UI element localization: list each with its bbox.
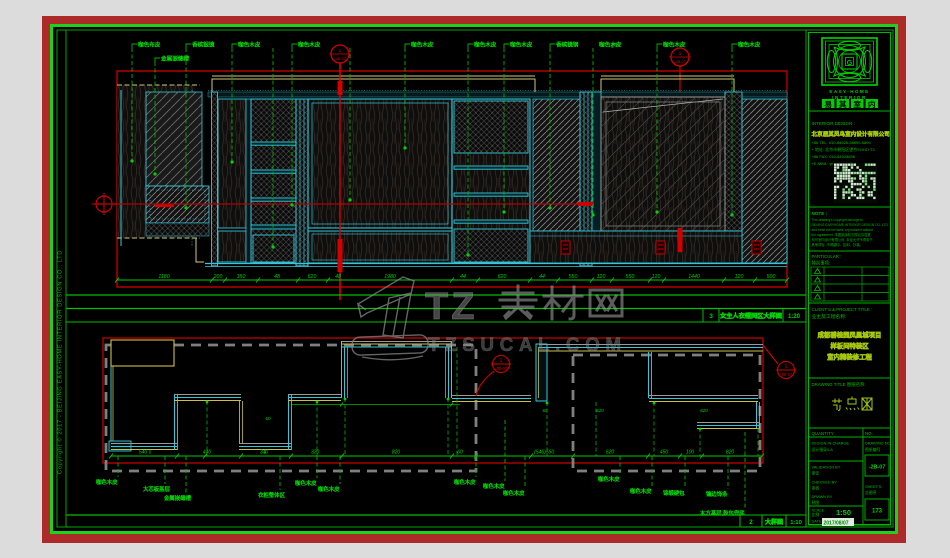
svg-text:咖色木皮: 咖色木皮 [483, 482, 505, 490]
svg-text:金属嵌缝槽: 金属嵌缝槽 [164, 494, 192, 502]
svg-text:320: 320 [311, 450, 320, 456]
svg-text:PARTICULAR :: PARTICULAR : [812, 254, 842, 259]
svg-text:120: 120 [597, 274, 606, 280]
svg-text:大芯板基层: 大芯板基层 [143, 485, 171, 493]
svg-text:审核: 审核 [812, 486, 820, 491]
svg-text:审定: 审定 [812, 471, 820, 476]
svg-text:香槟银镜: 香槟银镜 [192, 41, 215, 49]
svg-text:易: 易 [824, 100, 832, 109]
svg-text:衣柜整体区: 衣柜整体区 [258, 491, 286, 499]
svg-text:1: 1 [785, 364, 788, 370]
svg-text:1440: 1440 [688, 274, 700, 280]
svg-text:其他项目, 不得翻印、复制、抄袭。: 其他项目, 不得翻印、复制、抄袭。 [812, 242, 863, 247]
svg-text:the agreement. 本图纸版权归属北京居其: the agreement. 本图纸版权归属北京居其 [812, 232, 872, 237]
svg-text:样板间特装区: 样板间特装区 [830, 341, 869, 350]
svg-text:1:10: 1:10 [790, 520, 802, 526]
svg-text:540: 540 [139, 450, 148, 456]
svg-text:1:50: 1:50 [836, 508, 851, 517]
svg-text:820: 820 [392, 450, 401, 456]
svg-text:咖色木皮: 咖色木皮 [503, 489, 525, 497]
svg-text:and must not be used, reproduc: and must not be used, reproduced without [812, 228, 874, 232]
svg-text:INTERIOR DESIGN :: INTERIOR DESIGN : [812, 121, 855, 126]
svg-text:120: 120 [735, 274, 744, 280]
svg-text:咖色木皮: 咖色木皮 [298, 41, 321, 49]
svg-text:特别事项:: 特别事项: [812, 260, 831, 267]
svg-text:EASY-HOME: EASY-HOME [829, 89, 869, 94]
svg-text:This drawing's copyright belon: This drawing's copyright belongs to [812, 218, 864, 222]
svg-text:340: 340 [260, 450, 269, 456]
svg-text:咖色木皮: 咖色木皮 [318, 485, 340, 493]
svg-text:室: 室 [853, 99, 861, 109]
svg-text:DRAWING TITLE 图纸名称:: DRAWING TITLE 图纸名称: [812, 381, 866, 388]
svg-text:NOTE :: NOTE : [812, 211, 828, 216]
svg-text:820: 820 [726, 450, 735, 456]
svg-text:550: 550 [626, 274, 635, 280]
svg-text:550: 550 [569, 274, 578, 280]
svg-text:成都碧桂园凤凰城项目: 成都碧桂园凤凰城项目 [818, 330, 882, 339]
svg-text:1: 1 [500, 358, 503, 364]
svg-text:Copyright © 2017 - BEIJING EAS: Copyright © 2017 - BEIJING EASY-HOME INT… [57, 250, 64, 474]
svg-text:+86 TEL: 010-84928-58899-5899: +86 TEL: 010-84928-58899-5899 [812, 140, 872, 145]
svg-text:大样图: 大样图 [765, 518, 783, 526]
svg-text:制图: 制图 [812, 500, 820, 505]
svg-text:350: 350 [237, 274, 246, 280]
svg-text:48: 48 [335, 274, 341, 280]
svg-text:DRAWN BY: DRAWN BY [812, 494, 833, 499]
svg-text:60: 60 [265, 416, 271, 421]
svg-text:+ 地址: 北京市朝阳区望京SOHO T3: + 地址: 北京市朝阳区望京SOHO T3 [812, 146, 876, 152]
svg-text:其: 其 [839, 99, 847, 109]
svg-text:业主及工程名称:: 业主及工程名称: [812, 313, 847, 320]
svg-text:咖色木皮: 咖色木皮 [454, 478, 476, 486]
svg-text:图纸编号: 图纸编号 [865, 447, 881, 452]
svg-text:620: 620 [498, 274, 507, 280]
svg-text:NO.: NO. [865, 431, 873, 436]
svg-text:-2B-07: -2B-07 [780, 372, 793, 377]
svg-text:-2B-07: -2B-07 [334, 56, 347, 61]
svg-text:咖色布皮: 咖色布皮 [138, 41, 161, 49]
svg-text:620: 620 [308, 274, 317, 280]
svg-text:1180: 1180 [158, 274, 169, 280]
svg-text:3: 3 [709, 313, 713, 320]
svg-text:44: 44 [460, 274, 466, 280]
svg-text:锦缎硬包: 锦缎硬包 [663, 489, 685, 497]
svg-text:500: 500 [767, 274, 776, 280]
svg-text:咖色木皮: 咖色木皮 [738, 41, 761, 49]
svg-text:VALIDATION BY: VALIDATION BY [812, 465, 841, 470]
svg-text:820: 820 [700, 408, 708, 413]
svg-text:DESIGN IN CHARGE: DESIGN IN CHARGE [812, 441, 850, 446]
svg-text:TZ: TZ [425, 286, 477, 328]
svg-text:200: 200 [213, 274, 223, 280]
svg-text:173: 173 [872, 509, 883, 515]
svg-text:内: 内 [868, 99, 876, 109]
svg-text:咖色木皮: 咖色木皮 [663, 41, 686, 49]
svg-text:120: 120 [652, 274, 661, 280]
svg-text:BEIJING EASYHOME INTERIOR DESI: BEIJING EASYHOME INTERIOR DESIGN CO.,LTD [812, 223, 889, 227]
svg-text:620: 620 [596, 408, 604, 413]
svg-text:(546): (546) [534, 450, 546, 456]
svg-text:SHEET'S: SHEET'S [865, 484, 882, 489]
svg-text:比例: 比例 [812, 512, 820, 517]
svg-text:-2B-07: -2B-07 [674, 59, 687, 64]
svg-text:TZSUCAL.COM: TZSUCAL.COM [428, 335, 627, 356]
svg-text:北京居其凤鸟室内设计有限公司: 北京居其凤鸟室内设计有限公司 [812, 130, 891, 138]
svg-text:2: 2 [749, 519, 753, 526]
svg-text:咖色木皮: 咖色木皮 [96, 478, 118, 486]
svg-text:咖色木皮: 咖色木皮 [474, 41, 497, 49]
svg-text:咖色木皮: 咖色木皮 [238, 41, 261, 49]
svg-text:金属嵌缝槽: 金属嵌缝槽 [161, 55, 189, 63]
svg-text:60: 60 [457, 450, 463, 456]
svg-text:DATE: DATE [812, 519, 822, 524]
svg-text:设计指导/LA: 设计指导/LA [812, 447, 834, 452]
svg-text:QUANTITY: QUANTITY [812, 431, 834, 436]
svg-text:室内精装修工程: 室内精装修工程 [827, 352, 872, 361]
svg-text:450: 450 [660, 450, 669, 456]
svg-text:G: G [847, 60, 853, 67]
svg-text:镶边饰条: 镶边饰条 [706, 490, 728, 498]
svg-text:咖色木皮: 咖色木皮 [510, 41, 533, 49]
svg-text:-2B-07: -2B-07 [869, 465, 885, 471]
svg-text:620: 620 [606, 450, 615, 456]
svg-text:木方基层,鼓包兜底: 木方基层,鼓包兜底 [700, 509, 745, 517]
svg-text:总图序: 总图序 [865, 490, 877, 495]
svg-text:44: 44 [539, 274, 545, 280]
svg-text:咖色木皮: 咖色木皮 [295, 479, 317, 487]
svg-text:CHECKED BY: CHECKED BY [812, 480, 838, 485]
svg-text:DRAWING NO.: DRAWING NO. [865, 441, 892, 446]
svg-text:1980: 1980 [384, 274, 396, 280]
svg-text:1:20: 1:20 [788, 314, 801, 320]
svg-text:咖色木皮: 咖色木皮 [598, 475, 620, 483]
svg-text:48: 48 [274, 274, 280, 280]
svg-text:女主人衣帽间区大样图: 女主人衣帽间区大样图 [720, 312, 782, 320]
svg-text:凤鸟室内设计有限公司, 未经允许不得用于: 凤鸟室内设计有限公司, 未经允许不得用于 [812, 237, 874, 242]
svg-text:香槟镜钢: 香槟镜钢 [556, 41, 579, 49]
svg-text:+86 FAX: 010-84928896: +86 FAX: 010-84928896 [812, 154, 856, 159]
svg-text:2017/08/07: 2017/08/07 [824, 521, 849, 527]
svg-text:-2B-07: -2B-07 [495, 366, 508, 371]
svg-text:CLIENT'S & PROJECT TITLE :: CLIENT'S & PROJECT TITLE : [812, 307, 873, 312]
svg-text:100: 100 [686, 450, 695, 456]
svg-text:咖色木皮: 咖色木皮 [411, 41, 434, 49]
svg-text:咖色木皮: 咖色木皮 [630, 487, 652, 495]
svg-text:咖色木皮: 咖色木皮 [599, 41, 622, 49]
